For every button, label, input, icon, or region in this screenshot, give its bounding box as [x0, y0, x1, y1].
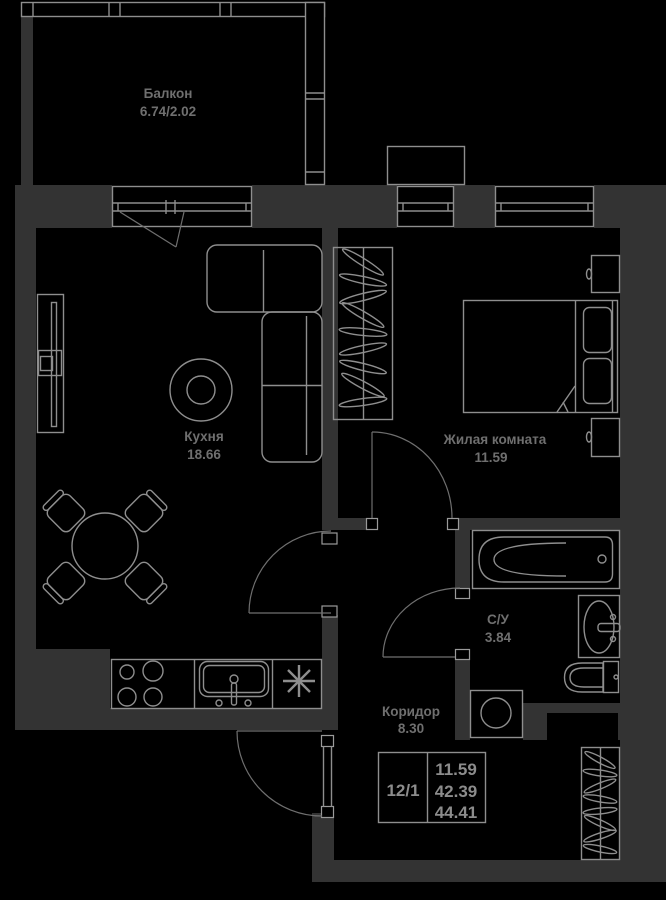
bathroom-area: 3.84	[485, 630, 512, 645]
wall-niche	[547, 713, 618, 740]
stamp-area-no-balcony: 42.39	[435, 782, 478, 801]
living-window-large	[495, 187, 594, 227]
corridor-area: 8.30	[398, 721, 424, 736]
stamp: 12/1 11.59 42.39 44.41	[379, 753, 486, 823]
balcony-area: 6.74/2.02	[140, 104, 196, 119]
floor-plan-canvas: Балкон 6.74/2.02	[0, 0, 666, 900]
kitchen-area: 18.66	[187, 447, 221, 462]
shaft	[388, 147, 465, 185]
kitchen-label: Кухня	[184, 429, 223, 444]
stamp-living-area: 11.59	[435, 760, 477, 779]
living-label: Жилая комната	[443, 432, 547, 447]
bathroom-label: С/У	[487, 612, 510, 627]
balcony-rail-top	[22, 3, 325, 17]
floor-plan: Балкон 6.74/2.02	[0, 0, 666, 900]
living-area: 11.59	[474, 450, 507, 465]
balcony-label: Балкон	[144, 86, 193, 101]
corridor-label: Коридор	[382, 704, 440, 719]
living-window-small	[397, 187, 454, 227]
stamp-total-area: 44.41	[435, 803, 478, 822]
stamp-unit: 12/1	[386, 781, 419, 800]
